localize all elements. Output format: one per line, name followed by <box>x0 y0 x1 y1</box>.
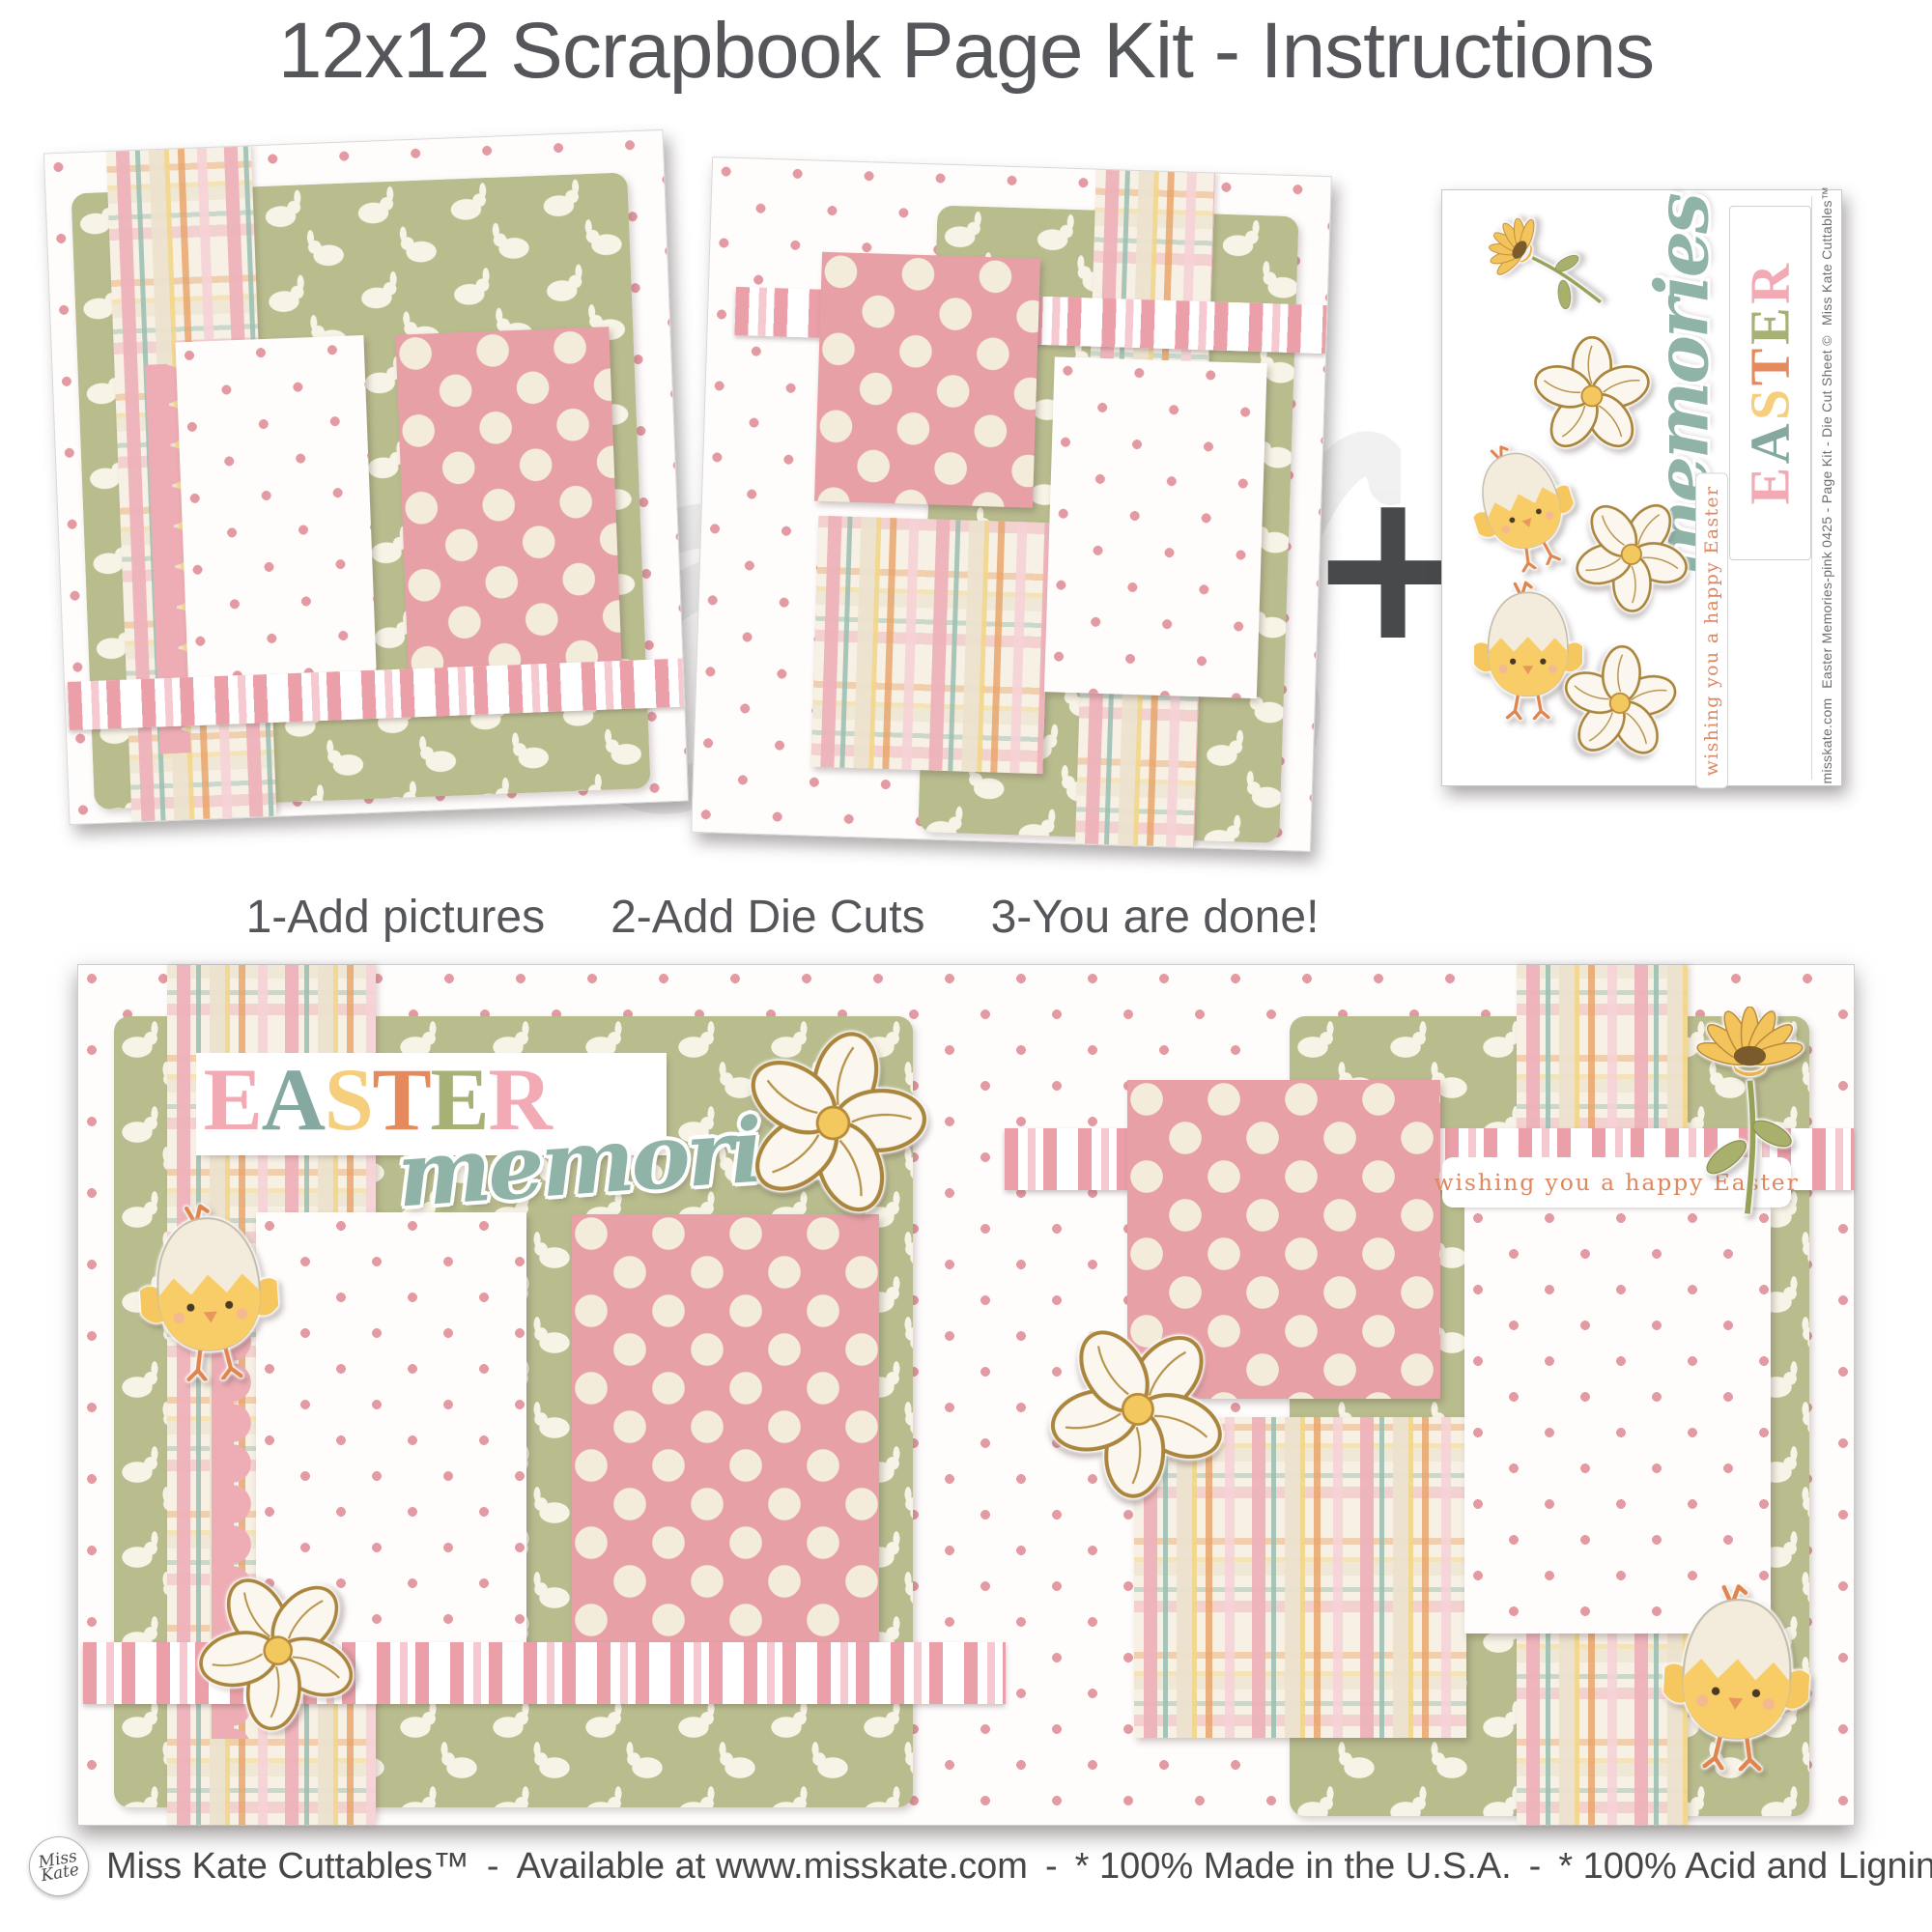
easter-letter: A <box>1739 420 1802 464</box>
easter-letter: E <box>204 1050 262 1149</box>
easter-letter: T <box>1739 345 1802 385</box>
finished-page-2: wishing you a happy Easter <box>966 965 1854 1825</box>
footer-separator: - <box>1529 1846 1542 1887</box>
sheet-margin-rule <box>1811 196 1812 780</box>
photo-mat-pink <box>395 327 623 706</box>
footer: Miss Kate Miss Kate Cuttables™-Available… <box>29 1836 1903 1896</box>
photo-mat-white <box>1044 356 1267 698</box>
chick-egg-sticker <box>134 1197 284 1385</box>
footer-separator: - <box>487 1846 499 1887</box>
easter-letter: S <box>325 1050 373 1149</box>
easter-letter: A <box>262 1050 325 1149</box>
sunflower-sticker <box>1694 1007 1805 1229</box>
footer-acid-free: * 100% Acid and Lignin-Free <box>1558 1846 1932 1887</box>
greeting-tag-diecut: wishing you a happy Easter <box>1695 472 1728 788</box>
layout-page-2-preview: wishing you a happy Easter <box>691 156 1332 852</box>
footer-brand: Miss Kate Cuttables™ <box>106 1846 469 1887</box>
tulip-flower-sticker <box>1476 206 1627 335</box>
footer-text: Miss Kate Cuttables™-Available at www.mi… <box>106 1846 1932 1888</box>
page-title: 12x12 Scrapbook Page Kit - Instructions <box>0 6 1932 97</box>
sheet-brand-text: Miss Kate Cuttables™ <box>1819 186 1834 326</box>
easter-title-diecut: EASTER <box>1729 206 1811 560</box>
easter-letter: E <box>1739 465 1802 505</box>
instruction-steps: 1-Add pictures 2-Add Die Cuts 3-You are … <box>87 891 1478 944</box>
logo-line-2: Kate <box>40 1863 80 1884</box>
finished-layout-preview: EASTER memories wishing you a happy East… <box>77 964 1855 1826</box>
easter-letter: R <box>1739 261 1802 304</box>
sheet-website-text: misskate.com <box>1819 697 1834 783</box>
plaid-square <box>810 516 1050 775</box>
photo-mat-pink <box>572 1214 879 1691</box>
layout-page-1-preview: EASTER memories <box>43 129 689 825</box>
easter-letter: E <box>1739 304 1802 345</box>
step-2: 2-Add Die Cuts <box>611 891 924 944</box>
sheet-product-code: Easter Memories-pink 0425 - Page Kit - D… <box>1819 335 1834 688</box>
page-2-design: wishing you a happy Easter <box>692 157 1331 851</box>
footer-made-in-usa: * 100% Made in the U.S.A. <box>1075 1846 1512 1887</box>
step-1: 1-Add pictures <box>246 891 546 944</box>
finished-page-1: EASTER memories <box>78 965 966 1825</box>
easter-word-vertical: EASTER <box>1738 261 1803 505</box>
die-cut-sheet: memories EASTER Easter Memories-pink 042… <box>1441 189 1842 786</box>
step-3: 3-You are done! <box>991 891 1320 944</box>
plus-icon: + <box>1306 462 1461 669</box>
easter-letter: S <box>1739 385 1802 420</box>
polka-dot-square <box>814 251 1039 507</box>
photo-mat-white <box>1464 1205 1770 1633</box>
page-1-design: EASTER memories <box>44 130 688 824</box>
footer-separator: - <box>1045 1846 1058 1887</box>
miss-kate-logo: Miss Kate <box>24 1832 94 1901</box>
photo-mat-white <box>175 335 376 677</box>
footer-availability: Available at www.misskate.com <box>517 1846 1028 1887</box>
chick-egg-sticker <box>1660 1578 1814 1774</box>
